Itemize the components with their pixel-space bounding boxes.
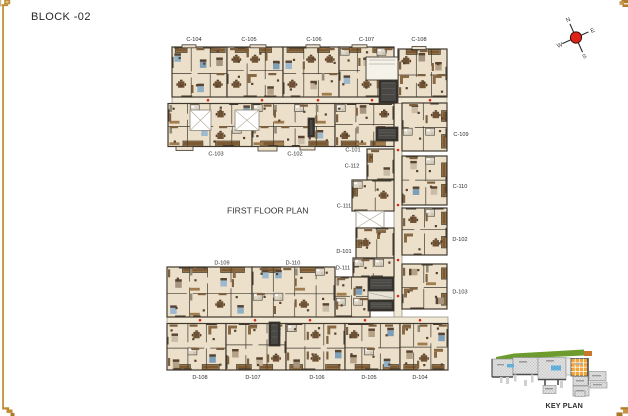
svg-text:C-102: C-102: [287, 152, 302, 158]
svg-text:D-102: D-102: [452, 237, 467, 243]
svg-text:C-103: C-103: [208, 152, 223, 158]
svg-text:D-101: D-101: [336, 249, 351, 255]
svg-text:C-112: C-112: [345, 164, 360, 170]
svg-text:D-110: D-110: [286, 261, 301, 267]
svg-text:D-109: D-109: [214, 261, 229, 267]
svg-text:C-110: C-110: [453, 184, 468, 190]
svg-text:D-103: D-103: [452, 290, 467, 296]
svg-text:D-108: D-108: [192, 375, 207, 381]
svg-text:C-101: C-101: [345, 148, 360, 154]
svg-text:C-106: C-106: [306, 37, 321, 43]
svg-text:KEY PLAN: KEY PLAN: [546, 401, 583, 410]
svg-text:C-109: C-109: [453, 132, 468, 138]
svg-text:D-111: D-111: [336, 266, 350, 272]
svg-text:FIRST FLOOR PLAN: FIRST FLOOR PLAN: [227, 205, 309, 215]
svg-text:D-107: D-107: [245, 375, 260, 381]
svg-text:C-104: C-104: [186, 37, 201, 43]
svg-text:C-111: C-111: [337, 204, 351, 210]
svg-text:BLOCK -02: BLOCK -02: [31, 11, 91, 23]
svg-text:D-104: D-104: [412, 375, 427, 381]
svg-text:C-108: C-108: [411, 37, 426, 43]
svg-text:D-105: D-105: [361, 375, 376, 381]
svg-text:C-105: C-105: [241, 37, 256, 43]
svg-text:C-107: C-107: [359, 37, 374, 43]
svg-text:D-106: D-106: [309, 375, 324, 381]
